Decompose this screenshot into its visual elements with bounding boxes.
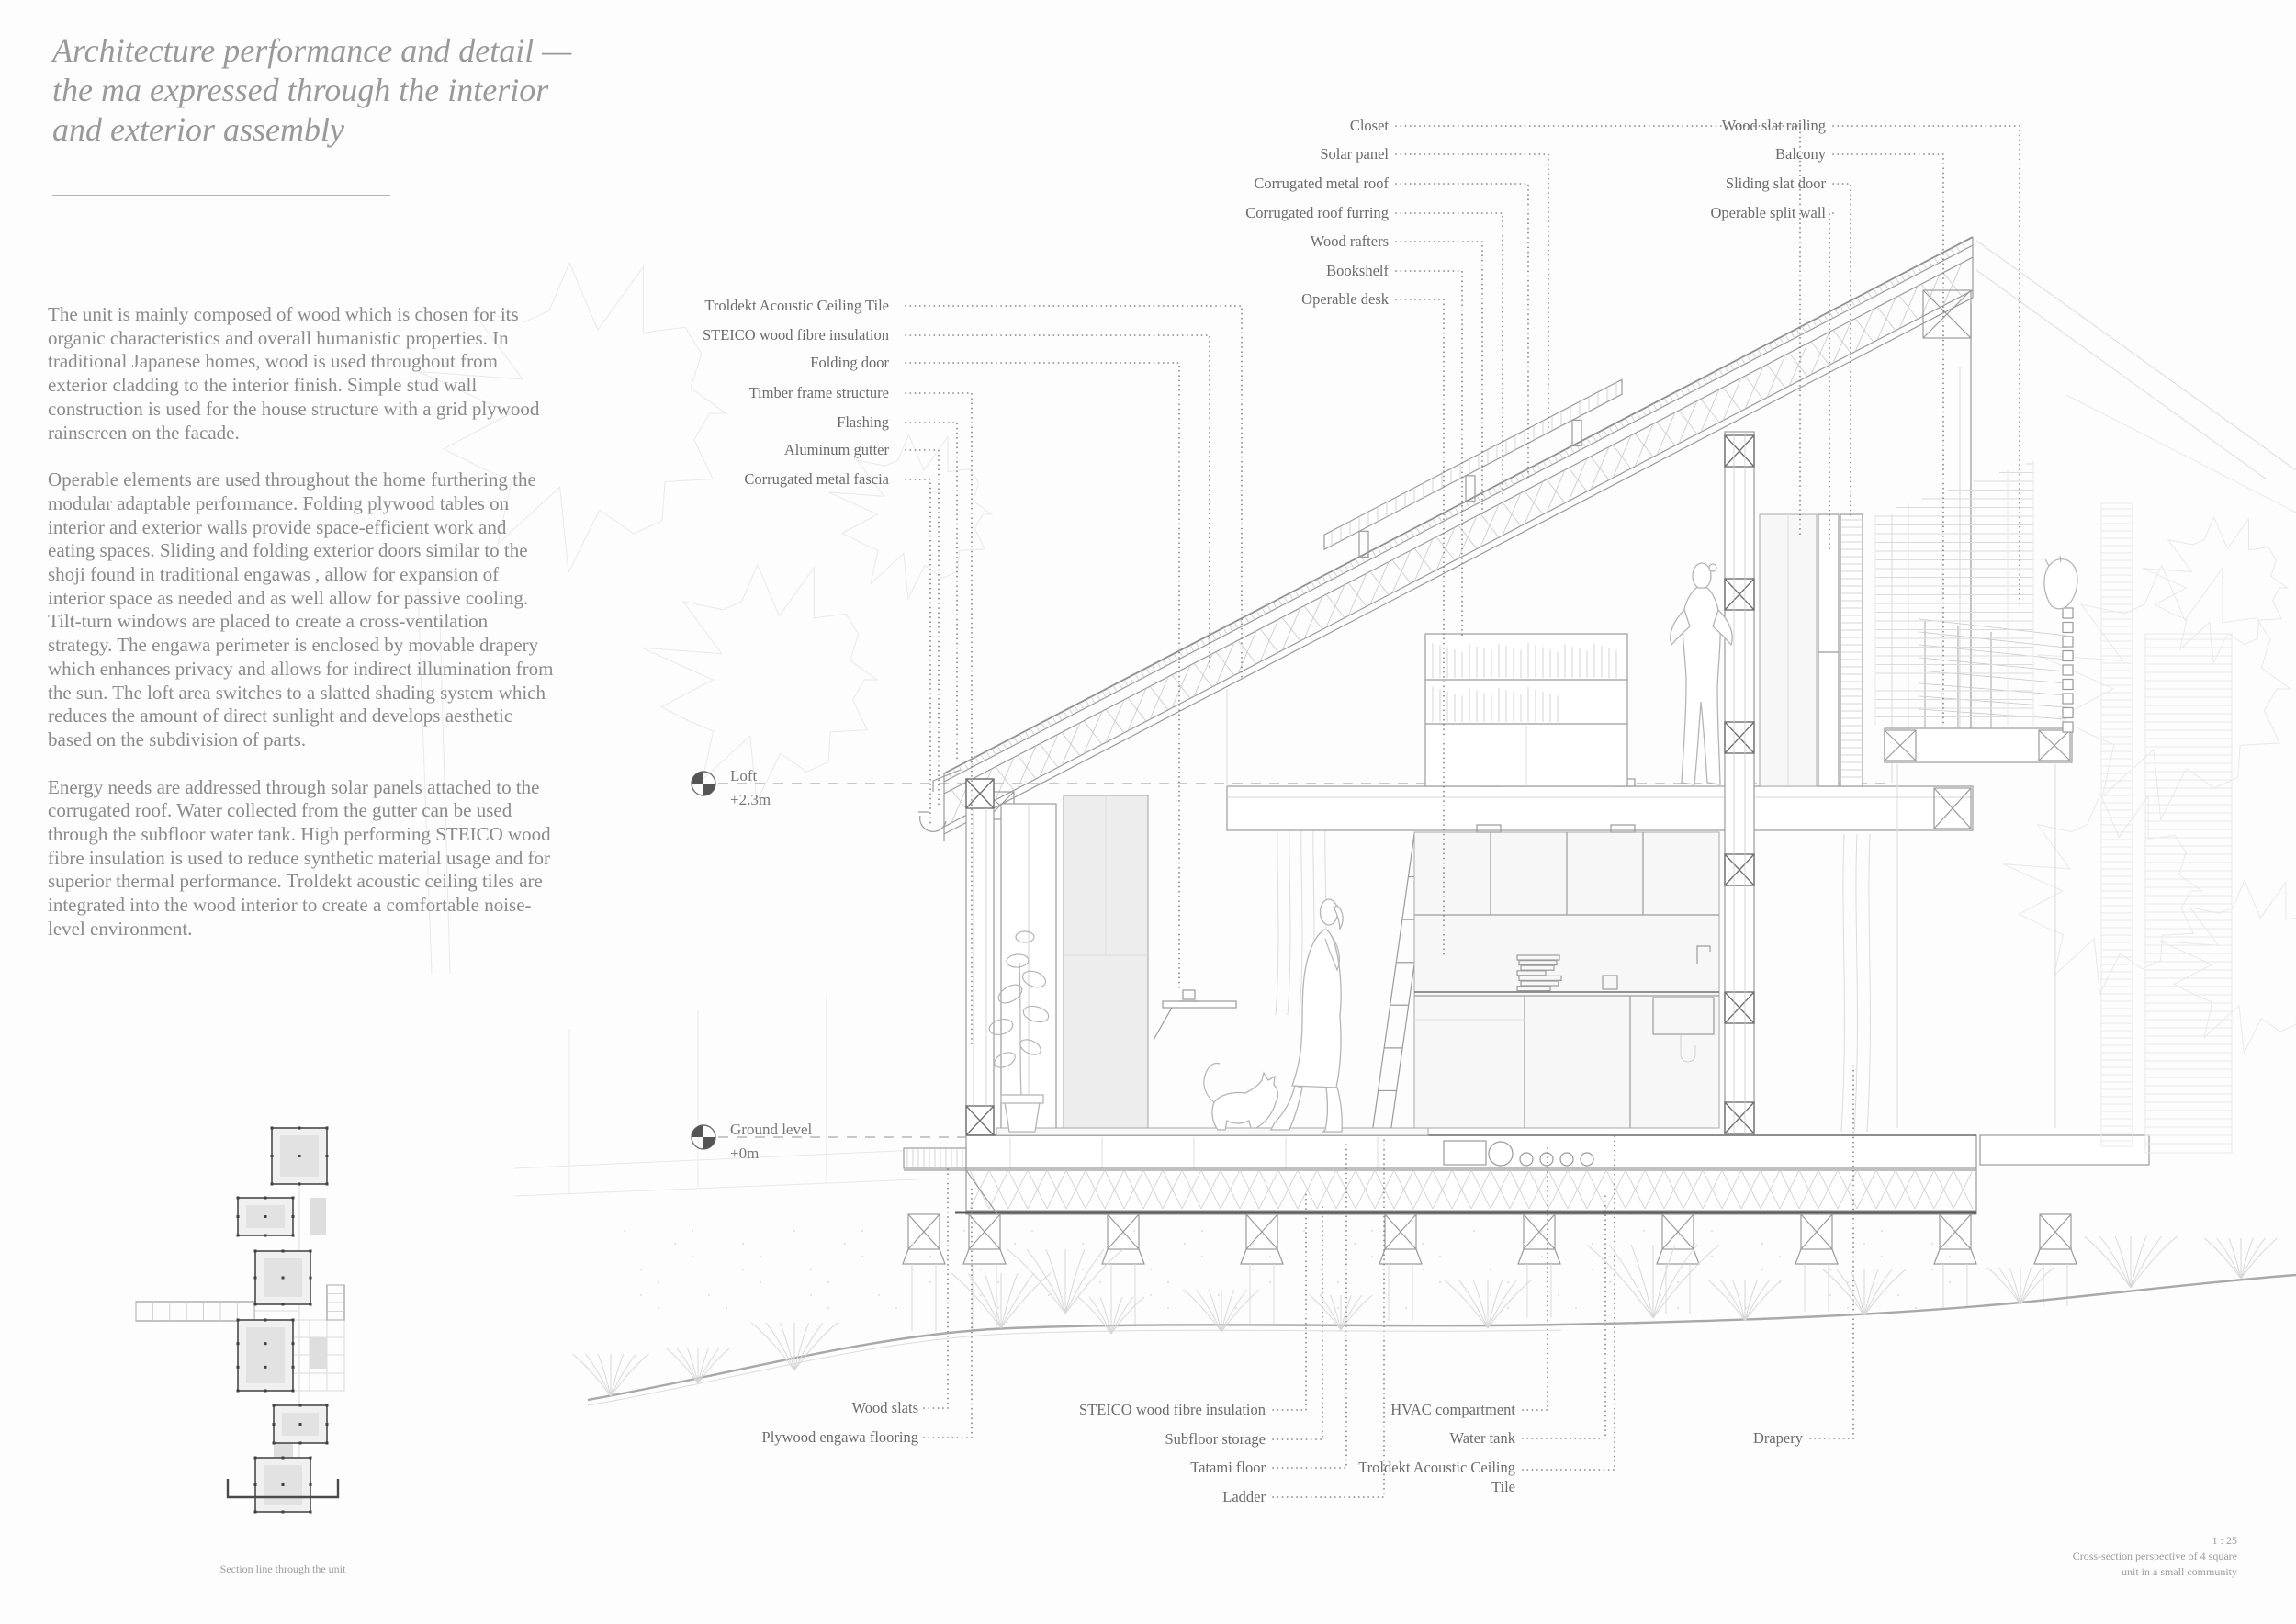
house-section: [903, 237, 2232, 1331]
callout-aluminum-gutter: Aluminum gutter: [568, 440, 889, 459]
callout-operable-split-wall: Operable split wall: [1550, 203, 1826, 222]
sheet-caption-line-1: Cross-section perspective of 4 square: [1962, 1549, 2237, 1564]
callout-wood-slat-railing: Wood slat railing: [1550, 116, 1826, 135]
callout-closet: Closet: [1113, 116, 1389, 135]
sheet-caption-line-2: unit in a small community: [1962, 1564, 2237, 1580]
plan-caption: Section line through the unit: [145, 1562, 421, 1577]
presentation-board: Architecture performance and detail — th…: [0, 0, 2296, 1624]
key-plan: [136, 1127, 344, 1514]
paragraph-energy: Energy needs are addressed through solar…: [48, 776, 555, 942]
callout-ladder: Ladder: [990, 1487, 1266, 1506]
callout-flashing: Flashing: [568, 412, 889, 432]
callout-balcony: Balcony: [1550, 144, 1826, 164]
sheet-caption: 1 : 25 Cross-section perspective of 4 sq…: [1962, 1533, 2237, 1580]
callout-hvac-compartment: HVAC compartment: [1341, 1400, 1515, 1419]
ground-level-elevation: +0m: [730, 1145, 759, 1163]
callout-operable-desk: Operable desk: [1113, 289, 1389, 309]
callout-tatami-floor: Tatami floor: [990, 1458, 1266, 1477]
title-line-1: Architecture performance and detail —: [52, 31, 750, 71]
callout-metal-fascia: Corrugated metal fascia: [568, 469, 889, 489]
page-title: Architecture performance and detail — th…: [52, 31, 750, 150]
title-line-2: the ma expressed through the interior: [52, 71, 750, 110]
paragraph-materials: The unit is mainly composed of wood whic…: [48, 303, 555, 445]
loft-level-label: Loft: [730, 767, 757, 785]
callout-drapery: Drapery: [1619, 1428, 1803, 1448]
callout-wood-slats: Wood slats: [643, 1398, 918, 1417]
paragraph-operable: Operable elements are used throughout th…: [48, 468, 555, 751]
title-underline: [52, 195, 390, 196]
callout-wood-rafters: Wood rafters: [1113, 231, 1389, 251]
callout-plywood-engawa: Plywood engawa flooring: [643, 1427, 918, 1447]
callout-corrugated-roof: Corrugated metal roof: [1113, 174, 1389, 193]
callout-steico-bottom: STEICO wood fibre insulation: [990, 1400, 1266, 1419]
callout-sliding-slat-door: Sliding slat door: [1550, 174, 1826, 193]
callout-roof-furring: Corrugated roof furring: [1113, 203, 1389, 222]
callout-subfloor-storage: Subfloor storage: [990, 1429, 1266, 1449]
callout-folding-door: Folding door: [568, 353, 889, 372]
callout-troldekt-bottom: Troldekt Acoustic Ceiling Tile: [1341, 1458, 1515, 1496]
title-line-3: and exterior assembly: [52, 110, 750, 150]
ground-level-label: Ground level: [730, 1121, 812, 1139]
callout-troldekt-ceiling-tile: Troldekt Acoustic Ceiling Tile: [568, 296, 889, 315]
loft-level-elevation: +2.3m: [730, 791, 771, 809]
callout-timber-frame: Timber frame structure: [568, 383, 889, 402]
callout-solar-panel: Solar panel: [1113, 144, 1389, 164]
callout-bookshelf: Bookshelf: [1113, 261, 1389, 280]
body-text: The unit is mainly composed of wood whic…: [48, 303, 555, 965]
callout-water-tank: Water tank: [1341, 1428, 1515, 1448]
sheet-scale: 1 : 25: [1962, 1533, 2237, 1549]
callout-steico-insulation: STEICO wood fibre insulation: [568, 325, 889, 344]
